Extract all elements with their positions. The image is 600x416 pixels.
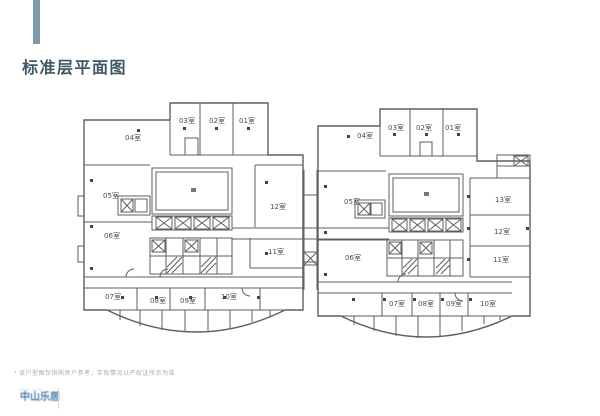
floor-plan-drawing <box>0 0 600 416</box>
left-atrium <box>152 168 232 214</box>
site-watermark-logo: leju.com 中山乐居 <box>20 387 60 409</box>
page: 标准层平面图 <box>0 0 600 416</box>
room-label-right-05: 05室 <box>344 197 360 207</box>
room-label-left-03: 03室 <box>179 116 195 126</box>
room-label-left-06: 06室 <box>104 231 120 241</box>
room-label-right-04: 04室 <box>357 131 373 141</box>
room-label-right-03: 03室 <box>388 123 404 133</box>
left-service-core <box>150 238 232 274</box>
room-label-left-10: 10室 <box>221 292 237 302</box>
logo-text: 中山乐居 <box>20 392 60 404</box>
room-label-right-07: 07室 <box>389 299 405 309</box>
left-stair-hatch <box>167 257 182 273</box>
door-swing-arcs <box>398 274 463 301</box>
room-label-right-08: 08室 <box>418 299 434 309</box>
right-curtain-wall-arc <box>341 316 512 337</box>
room-label-right-01: 01室 <box>445 123 461 133</box>
right-atrium <box>389 174 463 216</box>
left-curtain-wall-arc <box>107 310 285 332</box>
room-label-right-06: 06室 <box>345 253 361 263</box>
room-label-left-05: 05室 <box>103 191 119 201</box>
right-elevator-bank <box>389 218 463 232</box>
room-label-left-01: 01室 <box>239 116 255 126</box>
left-side-lobby <box>118 196 150 215</box>
room-label-right-12: 12室 <box>494 227 510 237</box>
room-label-left-12: 12室 <box>270 202 286 212</box>
structural-columns <box>90 127 268 299</box>
room-label-left-02: 02室 <box>209 116 225 126</box>
logo-divider <box>58 388 59 409</box>
room-label-left-07: 07室 <box>105 292 121 302</box>
right-top-stair-block <box>497 155 530 178</box>
room-label-right-09: 09室 <box>446 299 462 309</box>
disclaimer-note: * 该户型图仅供购房户参考，实际情况以产权证所示为准 <box>14 368 175 377</box>
right-service-core <box>387 240 463 276</box>
room-label-right-10: 10室 <box>480 299 496 309</box>
right-stair-hatch <box>403 259 417 274</box>
room-label-right-11: 11室 <box>493 255 509 265</box>
room-label-left-09: 09室 <box>180 296 196 306</box>
left-main-corridor <box>84 277 303 288</box>
bridge-corridor <box>232 228 389 239</box>
room-label-left-04: 04室 <box>125 133 141 143</box>
connecting-bridge <box>232 170 389 290</box>
left-elevator-bank <box>152 216 232 230</box>
room-label-right-13: 13室 <box>495 195 511 205</box>
room-label-left-08: 08室 <box>150 296 166 306</box>
room-label-right-02: 02室 <box>416 123 432 133</box>
right-main-corridor <box>318 282 512 293</box>
room-label-left-11: 11室 <box>268 247 284 257</box>
